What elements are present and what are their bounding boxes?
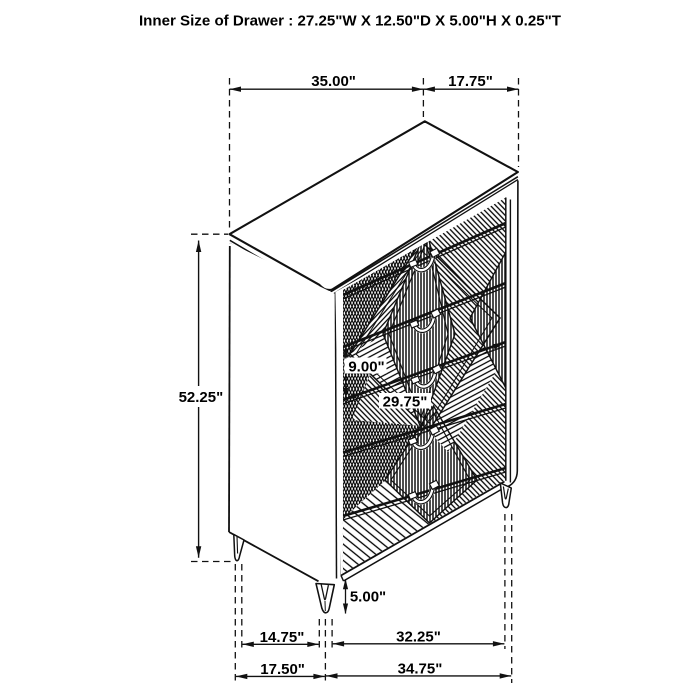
- svg-text:Inner Size of Drawer : 27.25"W: Inner Size of Drawer : 27.25"W X 12.50"D…: [139, 13, 562, 30]
- svg-text:5.00": 5.00": [350, 589, 386, 606]
- svg-text:17.75": 17.75": [448, 73, 493, 90]
- svg-text:29.75": 29.75": [383, 394, 428, 411]
- svg-text:52.25": 52.25": [179, 389, 224, 406]
- svg-text:14.75": 14.75": [260, 629, 305, 646]
- svg-text:34.75": 34.75": [398, 660, 443, 677]
- svg-text:32.25": 32.25": [396, 628, 441, 645]
- svg-text:17.50": 17.50": [260, 661, 305, 678]
- svg-text:35.00": 35.00": [311, 73, 356, 90]
- svg-text:9.00": 9.00": [348, 359, 384, 376]
